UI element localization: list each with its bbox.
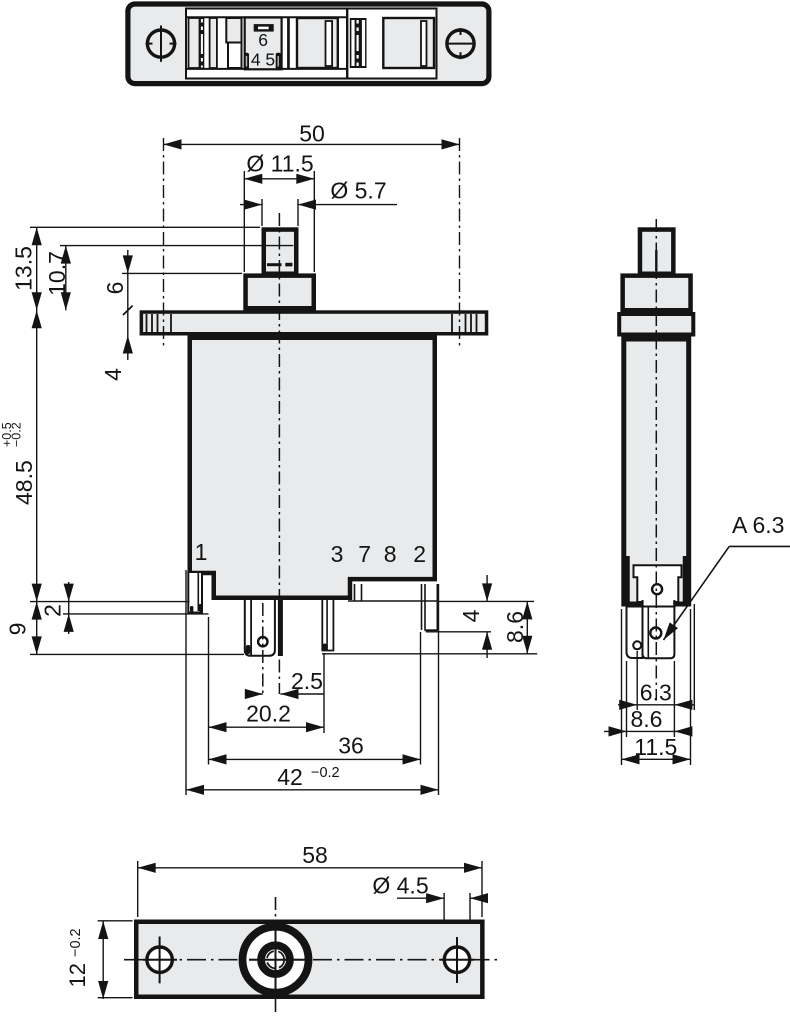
svg-text:8: 8: [384, 541, 397, 567]
svg-text:12: 12: [65, 963, 90, 987]
svg-text:50: 50: [299, 121, 325, 147]
svg-text:2.5: 2.5: [291, 668, 323, 694]
svg-text:−0.2: −0.2: [311, 765, 340, 781]
svg-text:Ø 4.5: Ø 4.5: [372, 873, 428, 899]
svg-text:4: 4: [458, 609, 484, 622]
svg-text:Ø 11.5: Ø 11.5: [246, 151, 313, 177]
svg-text:8.6: 8.6: [631, 706, 663, 732]
svg-text:7: 7: [358, 541, 371, 567]
svg-text:10.7: 10.7: [44, 251, 70, 296]
svg-text:Ø 5.7: Ø 5.7: [330, 178, 386, 204]
svg-text:4: 4: [251, 50, 261, 70]
svg-text:3: 3: [331, 541, 344, 567]
svg-text:13.5: 13.5: [10, 246, 36, 291]
svg-text:58: 58: [302, 842, 328, 868]
svg-text:1: 1: [195, 539, 208, 565]
svg-text:6: 6: [258, 30, 268, 50]
svg-text:36: 36: [338, 733, 364, 759]
svg-text:2: 2: [413, 541, 426, 567]
svg-text:4: 4: [100, 368, 126, 381]
svg-text:42: 42: [277, 764, 303, 790]
svg-text:9: 9: [5, 623, 31, 636]
svg-text:−0.2: −0.2: [68, 928, 84, 957]
svg-text:48.5: 48.5: [11, 460, 37, 505]
svg-text:−0.2: −0.2: [10, 422, 24, 447]
svg-text:2: 2: [40, 604, 66, 617]
svg-text:11.5: 11.5: [634, 734, 677, 760]
svg-text:8.6: 8.6: [502, 611, 528, 643]
svg-text:5: 5: [265, 50, 275, 70]
svg-text:20.2: 20.2: [246, 701, 291, 727]
svg-text:6: 6: [102, 282, 128, 295]
svg-text:A 6.3: A 6.3: [732, 512, 784, 538]
svg-text:6.3: 6.3: [640, 680, 672, 706]
